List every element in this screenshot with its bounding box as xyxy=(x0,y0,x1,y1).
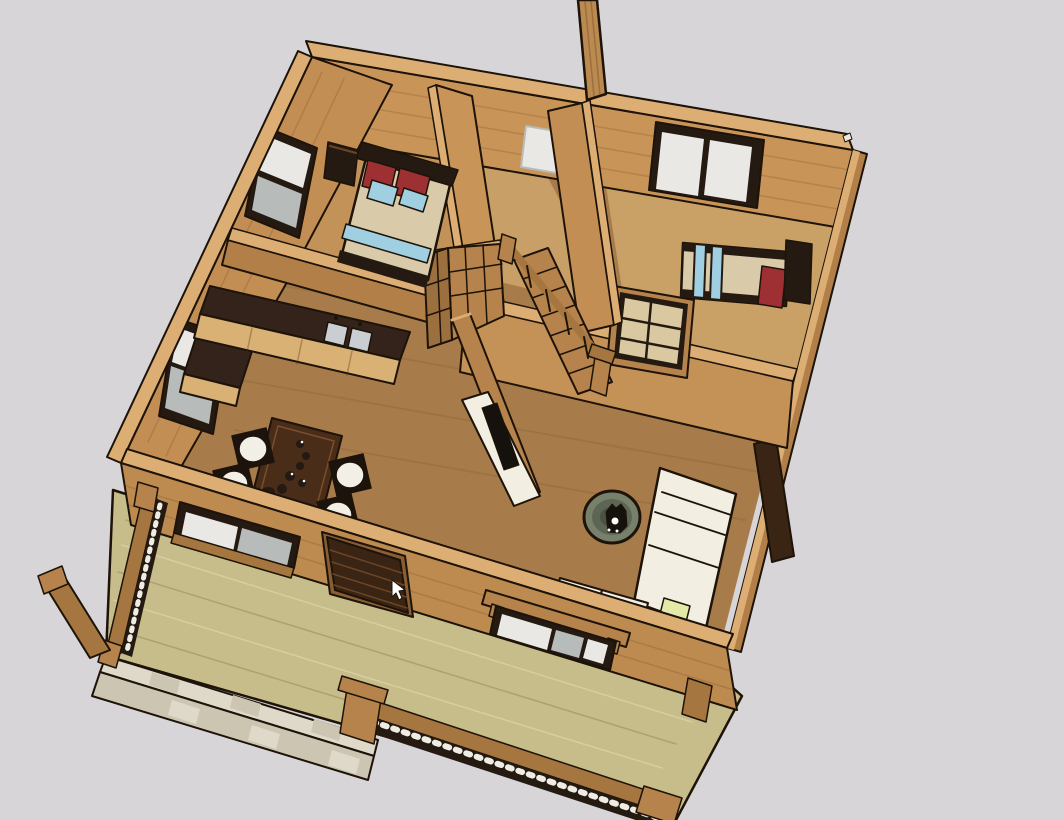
cat-paw xyxy=(616,530,619,533)
table-item-glint xyxy=(303,480,306,483)
model-viewport[interactable] xyxy=(0,0,1064,820)
left-rail-post xyxy=(134,482,158,512)
sink-faucet xyxy=(358,322,362,326)
house-corner-post xyxy=(682,678,712,722)
bedroom2-window-pane xyxy=(704,140,752,202)
kitchen-sink-basin xyxy=(324,322,348,346)
cat-paw xyxy=(608,529,611,532)
table-item xyxy=(277,484,287,494)
table-item xyxy=(296,462,304,470)
table-item xyxy=(285,471,295,481)
cat-chest xyxy=(612,518,619,525)
single-bed-headboard xyxy=(784,240,812,304)
single-bed-stripe xyxy=(693,244,706,298)
table-item-glint xyxy=(291,473,294,476)
bedroom2-window-pane xyxy=(656,132,704,196)
sink-faucet xyxy=(334,316,338,320)
stair-post xyxy=(498,234,516,264)
table-item-glint xyxy=(301,441,304,444)
kitchen-sink-basin xyxy=(348,328,372,352)
table-item xyxy=(302,452,310,460)
dining-chair-cushion xyxy=(336,462,364,488)
model-stage xyxy=(0,0,1064,820)
dining-chair-cushion xyxy=(239,436,267,462)
single-bed-stripe xyxy=(710,246,723,300)
single-bed-pillow-red xyxy=(758,266,786,308)
